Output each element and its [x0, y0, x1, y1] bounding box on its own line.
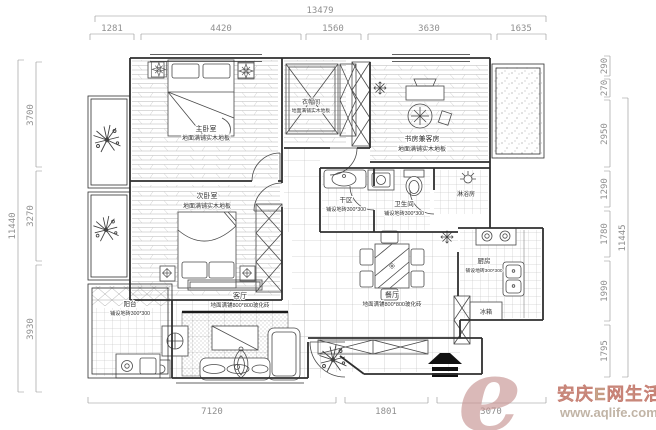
dim-left-total: 11440	[8, 212, 18, 239]
dim-top-total: 13479	[306, 6, 333, 16]
dim-left-seg: 3700	[26, 104, 36, 126]
watermark-brand: 安庆E网生活	[557, 384, 656, 404]
washing-machine-bath	[368, 170, 394, 190]
room-label-living: 客厅	[233, 291, 247, 300]
dim-bottom-seg: 7120	[201, 407, 223, 417]
dim-top-seg: 1560	[322, 24, 344, 34]
floor-label-dining: 地面满铺800*800玻化砖	[363, 300, 422, 308]
floor-label-kitchen: 铺设地砖300*300	[465, 267, 502, 274]
watermark-letter-e: e	[458, 336, 522, 430]
bathroom-sink	[324, 170, 366, 188]
room-label-dining: 餐厅	[385, 290, 399, 299]
dim-left-seg: 3930	[26, 318, 36, 340]
kitchen-sink	[503, 262, 524, 296]
floor-label-second-bedroom: 地面满铺实木地板	[183, 202, 231, 210]
dim-left-seg: 3270	[26, 205, 36, 227]
floor-plan-canvas: 13479 1281 4420 1560 3630 1635 11440 370…	[0, 0, 656, 430]
dim-right-seg: 1780	[600, 223, 610, 245]
ceiling-lamp-icon	[374, 82, 386, 94]
room-label-second-bedroom: 次卧室	[197, 191, 218, 200]
dim-right-total: 11445	[618, 224, 628, 251]
dim-right-seg: 1290	[600, 178, 610, 200]
dim-right-seg: 2950	[600, 123, 610, 145]
floor-label-cloakroom: 地面满铺实木地板	[292, 107, 331, 114]
watermark-url: www.aqlife.com	[559, 405, 656, 420]
dim-right-seg: 1990	[600, 280, 610, 302]
dim-right-seg: 1795	[600, 340, 610, 362]
floor-label-master-bedroom: 地面满铺实木地板	[182, 134, 230, 142]
centerpiece-icon	[389, 263, 395, 269]
watermark: e 安庆E网生活 www.aqlife.com	[458, 336, 656, 430]
room-label-bathroom: 卫生间	[394, 199, 414, 208]
room-label-balcony: 阳台	[124, 299, 137, 308]
floor-label-living: 地面满铺800*800玻化砖	[211, 301, 270, 309]
floor-label-dry-area: 铺设地砖300*300	[326, 205, 366, 213]
dim-top-seg: 3630	[418, 24, 440, 34]
fridge-label: 冰箱	[480, 308, 492, 316]
room-label-shower: 淋浴房	[457, 190, 475, 198]
dim-right-seg: 270	[600, 80, 610, 96]
room-label-cloakroom: 衣帽间	[302, 98, 320, 106]
floor-label-study: 地面满铺实木地板	[398, 145, 446, 153]
dim-top-seg: 1635	[510, 24, 532, 34]
floor-fills	[92, 60, 542, 378]
room-label-study: 书房兼客房	[405, 134, 440, 143]
room-label-kitchen: 厨房	[478, 256, 491, 265]
plant-icon	[94, 125, 121, 152]
dim-top-seg: 1281	[101, 24, 123, 34]
floor-label-bathroom: 铺设地砖300*300	[384, 209, 424, 217]
room-label-dry-area: 干区	[340, 196, 354, 204]
room-label-master-bedroom: 主卧室	[196, 124, 217, 133]
dim-top-seg: 4420	[210, 24, 232, 34]
dim-bottom-seg: 1801	[375, 407, 397, 417]
floor-plan-page: 13479 1281 4420 1560 3630 1635 11440 370…	[0, 0, 656, 430]
tv	[212, 326, 258, 350]
plant-icon	[93, 216, 118, 241]
floor-label-balcony: 铺设地砖300*300	[110, 309, 150, 317]
dim-right-seg: 290	[600, 58, 610, 74]
stove	[476, 228, 516, 245]
